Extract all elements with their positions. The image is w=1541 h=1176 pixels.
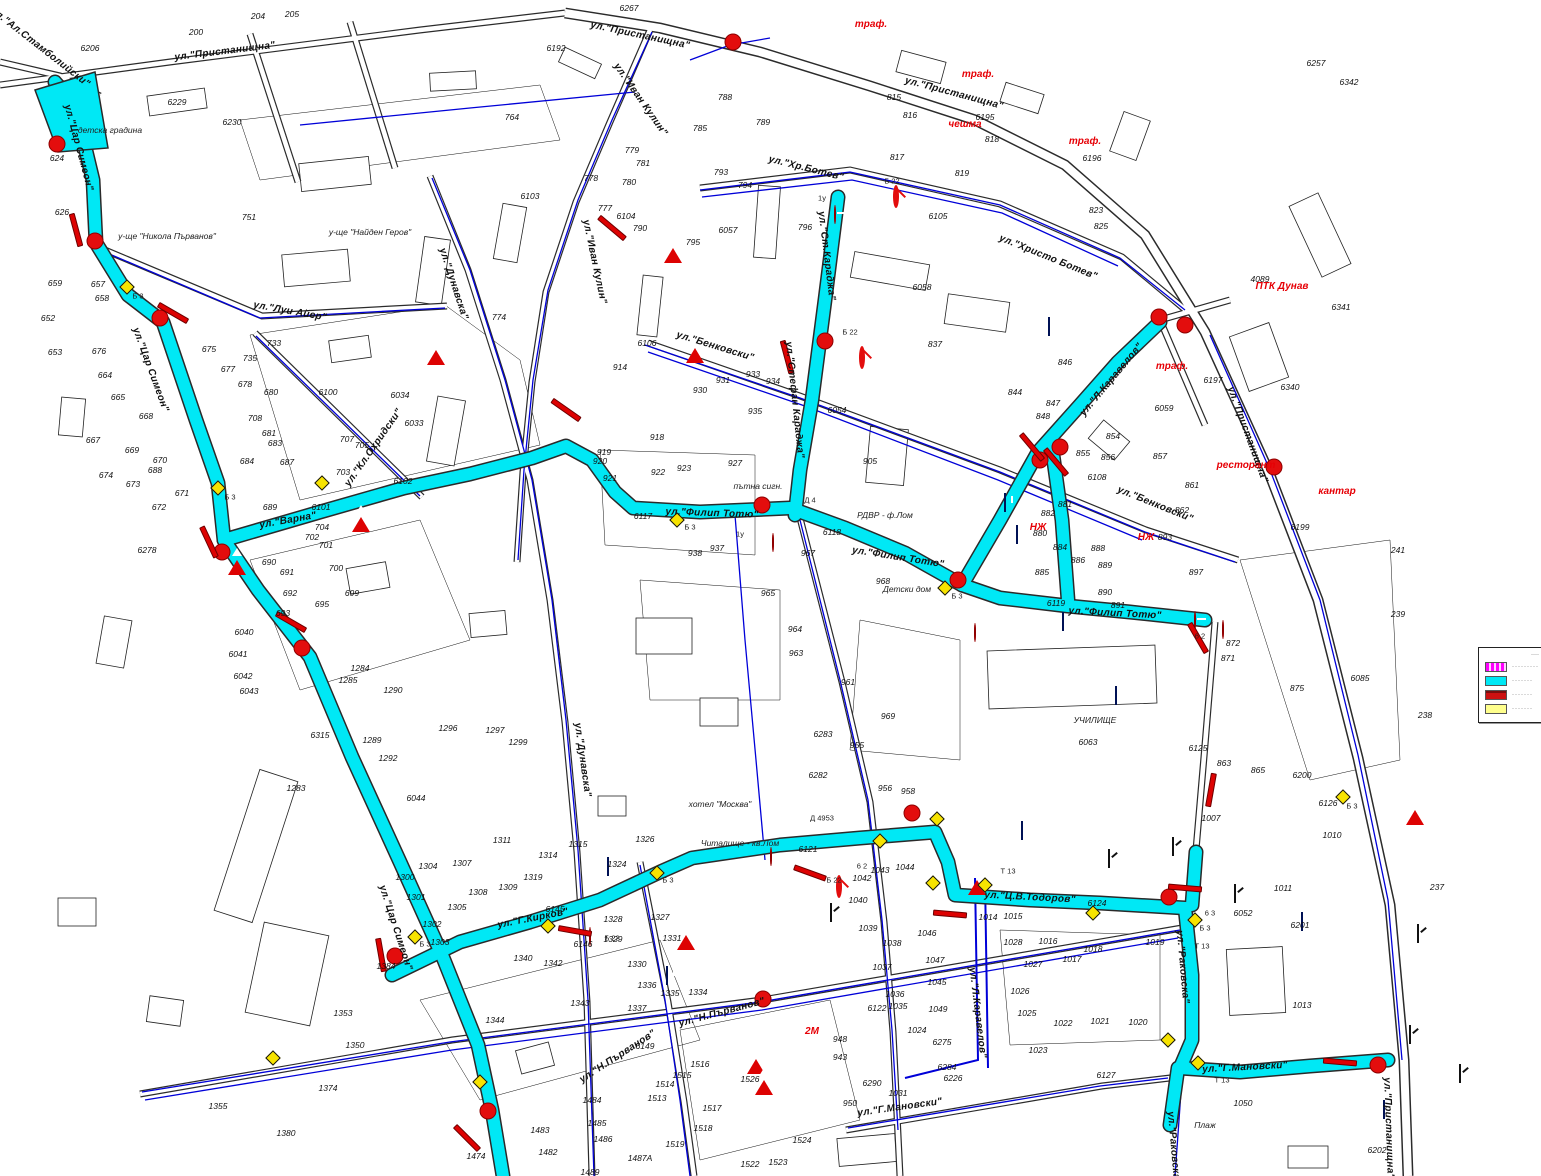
- parcel-number: 825: [1094, 222, 1108, 231]
- parcel-number: 700: [329, 564, 343, 573]
- parcel-number: 1342: [544, 959, 563, 968]
- parcel-number: 1516: [691, 1060, 710, 1069]
- parcel-number: 1026: [1011, 987, 1030, 996]
- parcel-number: 204: [251, 12, 265, 21]
- parcel-number: 875: [1290, 684, 1304, 693]
- parcel-number: 948: [833, 1035, 847, 1044]
- info-sign-icon: [1004, 493, 1006, 512]
- sign-code-label: Б 3: [662, 876, 673, 884]
- parcel-number: 1380: [277, 1129, 296, 1138]
- parcel-number: 886: [1071, 556, 1085, 565]
- parcel-number: 1343: [571, 999, 590, 1008]
- parcel-number: 6192: [547, 44, 566, 53]
- legend-item-red: ·······: [1485, 690, 1539, 700]
- parcel-number: 6290: [863, 1079, 882, 1088]
- yield-sign-icon: [228, 543, 246, 575]
- parcel-number: 1519: [666, 1140, 685, 1149]
- parcel-number: 1515: [673, 1071, 692, 1080]
- parcel-number: 1489: [581, 1168, 600, 1176]
- sign-code-label: Б 3: [684, 523, 695, 531]
- parcel-number: 701: [319, 541, 333, 550]
- parcel-number: 1040: [849, 896, 868, 905]
- parcel-number: 1028: [1004, 938, 1023, 947]
- poi-label-red: кантар: [1318, 487, 1355, 497]
- sign-code-label: Б 3: [1346, 802, 1357, 810]
- parcel-number: 1513: [648, 1094, 667, 1103]
- parcel-number: 1031: [889, 1089, 908, 1098]
- parcel-number: 692: [283, 589, 297, 598]
- parcel-number: 969: [881, 712, 895, 721]
- parcel-number: 819: [955, 169, 969, 178]
- no-entry-sign-icon: [834, 205, 836, 224]
- parcel-number: 785: [693, 124, 707, 133]
- parcel-number: 6341: [1332, 303, 1351, 312]
- parcel-number: 1328: [604, 915, 623, 924]
- parcel-number: 938: [688, 549, 702, 558]
- poi-label-red: НЖ: [1138, 533, 1155, 543]
- parcel-number: 1300: [396, 873, 415, 882]
- red-poi-marker-icon: [1161, 889, 1178, 906]
- parcel-number: 1039: [859, 924, 878, 933]
- parcel-number: 1050: [1234, 1099, 1253, 1108]
- parcel-number: 780: [622, 178, 636, 187]
- parcel-number: 897: [1189, 568, 1203, 577]
- parcel-number: 6105: [929, 212, 948, 221]
- red-poi-marker-icon: [1177, 317, 1194, 334]
- parcel-number: 1296: [439, 724, 458, 733]
- parcel-number: 815: [887, 93, 901, 102]
- no-entry-sign-icon: [772, 533, 774, 552]
- parcel-number: 837: [928, 340, 942, 349]
- red-poi-marker-icon: [49, 136, 66, 153]
- parcel-number: 1482: [539, 1148, 558, 1157]
- parcel-number: 817: [890, 153, 904, 162]
- parcel-number: 1304: [419, 862, 438, 871]
- poi-label-red: траф.: [1069, 137, 1101, 147]
- parcel-number: 664: [98, 371, 112, 380]
- parcel-number: 1011: [1274, 884, 1292, 893]
- parcel-number: 1021: [1091, 1017, 1110, 1026]
- parcel-number: 923: [677, 464, 691, 473]
- parcel-number: 1314: [539, 851, 558, 860]
- parcel-number: 6229: [168, 98, 187, 107]
- parcel-number: 1047: [926, 956, 945, 965]
- parcel-number: 963: [789, 649, 803, 658]
- crossing-sign-icon: [830, 903, 832, 922]
- parcel-number: 890: [1098, 588, 1112, 597]
- poi-label: у-ще "Никола Първанов": [118, 232, 216, 241]
- parcel-number: 854: [1106, 432, 1120, 441]
- sign-code-label: Т 13: [1194, 942, 1209, 950]
- parcel-number: 955: [850, 741, 864, 750]
- parcel-number: 1311: [493, 836, 511, 845]
- info-sign-icon: [1048, 317, 1050, 336]
- parcel-number: 708: [248, 414, 262, 423]
- parcel-number: 733: [267, 339, 281, 348]
- parcel-number: 865: [1251, 766, 1265, 775]
- parcel-number: 6119: [1047, 599, 1065, 608]
- red-poi-marker-icon: [87, 233, 104, 250]
- parcel-number: 6196: [1083, 154, 1102, 163]
- parcel-number: 6034: [391, 391, 410, 400]
- parcel-number: 764: [505, 113, 519, 122]
- parcel-number: 933: [746, 370, 760, 379]
- parcel-number: 1018: [1084, 945, 1103, 954]
- parcel-number: 6054: [828, 406, 847, 415]
- sign-code-label: Б 22: [884, 177, 899, 185]
- parcel-number: 665: [111, 393, 125, 402]
- poi-label: детска градина: [78, 126, 142, 135]
- sign-code-label: Б 3: [132, 292, 143, 300]
- yield-sign-icon: [664, 231, 682, 263]
- poi-label-red: НЖ: [1030, 523, 1047, 533]
- parcel-number: 1517: [703, 1104, 722, 1113]
- parcel-number: 967: [801, 549, 815, 558]
- poi-label-red: траф.: [962, 70, 994, 80]
- parcel-number: 6267: [620, 4, 639, 13]
- parcel-number: 885: [1035, 568, 1049, 577]
- parcel-number: 1485: [588, 1119, 607, 1128]
- parcel-number: 658: [95, 294, 109, 303]
- info-sign-icon: [1062, 612, 1064, 631]
- parcel-number: 856: [1101, 453, 1115, 462]
- red-poi-marker-icon: [1370, 1057, 1387, 1074]
- parcel-number: 1292: [379, 754, 398, 763]
- sign-code-label: 6 3: [1205, 909, 1215, 917]
- parcel-number: 872: [1226, 639, 1240, 648]
- parcel-number: 1038: [883, 939, 902, 948]
- parcel-number: 937: [710, 544, 724, 553]
- parcel-number: 1474: [467, 1152, 486, 1161]
- parcel-number: 673: [126, 480, 140, 489]
- parcel-number: 778: [584, 174, 598, 183]
- parcel-number: 6103: [521, 192, 540, 201]
- yield-sign-icon: [1406, 793, 1424, 825]
- crossing-sign-icon: [1172, 837, 1174, 856]
- crossing-sign-icon: [1234, 884, 1236, 903]
- sign-code-label: Б 3: [951, 592, 962, 600]
- parcel-number: 1334: [689, 988, 708, 997]
- parcel-number: 205: [285, 10, 299, 19]
- parcel-number: 690: [262, 558, 276, 567]
- parcel-number: 1285: [339, 676, 358, 685]
- parcel-number: 1302: [423, 920, 442, 929]
- parcel-number: 1486: [594, 1135, 613, 1144]
- parcel-number: 702: [305, 533, 319, 542]
- no-entry-sign-icon: [770, 847, 772, 866]
- parcel-number: 1013: [1293, 1001, 1312, 1010]
- parcel-number: 683: [268, 439, 282, 448]
- parcel-number: 1483: [531, 1126, 550, 1135]
- parcel-number: 905: [863, 457, 877, 466]
- parcel-number: 6275: [933, 1038, 952, 1047]
- legend-swatch-cyan-icon: [1485, 676, 1507, 686]
- parcel-number: 847: [1046, 399, 1060, 408]
- parcel-number: 943: [833, 1053, 847, 1062]
- parcel-number: 1526: [741, 1075, 760, 1084]
- parcel-number: 652: [41, 314, 55, 323]
- parcel-number: 855: [1076, 449, 1090, 458]
- parcel-number: 1484: [583, 1096, 602, 1105]
- parcel-number: 6106: [638, 339, 657, 348]
- poi-label-red: 2М: [805, 1027, 819, 1037]
- parcel-number: 794: [738, 181, 752, 190]
- parcel-number: 624: [50, 154, 64, 163]
- parcel-number: 688: [148, 466, 162, 475]
- parcel-number: 6283: [814, 730, 833, 739]
- parcel-number: 689: [263, 503, 277, 512]
- parcel-number: 1344: [486, 1016, 505, 1025]
- parcel-number: 1335: [661, 989, 680, 998]
- parcel-number: 1007: [1202, 814, 1221, 823]
- parcel-number: 1308: [469, 888, 488, 897]
- parcel-number: 695: [315, 600, 329, 609]
- parcel-number: 6282: [809, 771, 828, 780]
- parcel-number: 751: [242, 213, 256, 222]
- parcel-number: 920: [593, 457, 607, 466]
- parcel-number: 674: [99, 471, 113, 480]
- parcel-number: 676: [92, 347, 106, 356]
- info-sign-icon: [1021, 821, 1023, 840]
- crossing-sign-icon: [1108, 849, 1110, 868]
- parcel-number: 1337: [628, 1004, 647, 1013]
- sign-code-label: Б 22: [842, 328, 857, 336]
- poi-label-red: траф.: [1156, 362, 1188, 372]
- parcel-number: 882: [1041, 509, 1055, 518]
- legend-swatch-red-icon: [1485, 690, 1507, 700]
- parcel-number: 669: [125, 446, 139, 455]
- parcel-number: 6226: [944, 1074, 963, 1083]
- parcel-number: 1044: [896, 863, 915, 872]
- parcel-number: 1036: [886, 990, 905, 999]
- parcel-number: 6199: [1291, 523, 1310, 532]
- sign-code-label: Б 3: [224, 493, 235, 501]
- poi-label: Читалище - кв.Лом: [701, 839, 779, 848]
- poi-label: пътна сигн.: [733, 482, 782, 491]
- parcel-number: 846: [1058, 358, 1072, 367]
- parcel-number: 922: [651, 468, 665, 477]
- parcel-number: 1487А: [628, 1154, 653, 1163]
- parcel-number: 861: [1185, 481, 1199, 490]
- parcel-number: 6044: [407, 794, 426, 803]
- parcel-number: 707: [340, 435, 354, 444]
- parcel-number: 6127: [1097, 1071, 1116, 1080]
- parcel-number: 6041: [229, 650, 248, 659]
- info-sign-icon: [666, 966, 668, 985]
- parcel-number: 238: [1418, 711, 1432, 720]
- parcel-number: 1045: [928, 978, 947, 987]
- parcel-number: 6058: [913, 283, 932, 292]
- parcel-number: 795: [686, 238, 700, 247]
- parcel-number: 6340: [1281, 383, 1300, 392]
- parcel-number: 956: [878, 784, 892, 793]
- crossing-sign-icon: [1409, 1025, 1411, 1044]
- parcel-number: 6118: [823, 528, 841, 537]
- parcel-number: 893: [1158, 533, 1172, 542]
- parcel-number: 1017: [1063, 955, 1082, 964]
- parcel-number: 796: [798, 223, 812, 232]
- parcel-number: 1014: [979, 913, 998, 922]
- parcel-number: 1299: [509, 738, 528, 747]
- parcel-number: 6230: [223, 118, 242, 127]
- parcel-number: 6121: [799, 845, 818, 854]
- parcel-number: 1020: [1129, 1018, 1148, 1027]
- parcel-number: 6278: [138, 546, 157, 555]
- parcel-number: 1374: [319, 1084, 338, 1093]
- parcel-number: 1290: [384, 686, 403, 695]
- parcel-number: 1336: [638, 981, 657, 990]
- parcel-number: 6117: [634, 512, 652, 521]
- sign-code-label: Б 3: [419, 940, 430, 948]
- parcel-number: 863: [1217, 759, 1231, 768]
- no-stopping-sign-icon: [859, 346, 865, 369]
- parcel-number: 781: [636, 159, 650, 168]
- poi-label-red: чешма: [948, 120, 981, 130]
- parcel-number: 889: [1098, 561, 1112, 570]
- parcel-number: 681: [262, 429, 276, 438]
- yield-sign-icon: [427, 333, 445, 365]
- parcel-number: 1284: [351, 664, 370, 673]
- parcel-number: 918: [650, 433, 664, 442]
- parcel-number: 844: [1008, 388, 1022, 397]
- red-poi-marker-icon: [1052, 439, 1069, 456]
- parcel-number: 691: [280, 568, 294, 577]
- poi-label: хотел "Москва": [689, 800, 752, 809]
- poi-label-red: траф.: [855, 20, 887, 30]
- parcel-number: 6042: [234, 672, 253, 681]
- parcel-number: 1319: [524, 873, 543, 882]
- parcel-number: 675: [202, 345, 216, 354]
- parcel-number: 200: [189, 28, 203, 37]
- parcel-number: 1046: [918, 929, 937, 938]
- parcel-number: 6201: [1291, 921, 1310, 930]
- street-label: ул."Пристанищна": [1381, 1077, 1395, 1176]
- parcel-number: 789: [756, 118, 770, 127]
- parcel-number: 793: [714, 168, 728, 177]
- parcel-number: 6043: [240, 687, 259, 696]
- parcel-number: 6052: [1234, 909, 1253, 918]
- parcel-number: 6125: [1189, 744, 1208, 753]
- sign-code-label: 6 2: [1195, 632, 1205, 640]
- parcel-number: 927: [728, 459, 742, 468]
- parcel-number: 1283: [287, 784, 306, 793]
- parcel-number: 6206: [81, 44, 100, 53]
- parcel-number: 774: [492, 313, 506, 322]
- parcel-number: 667: [86, 436, 100, 445]
- poi-label: у-ще "Найден Геров": [329, 228, 411, 237]
- parcel-number: 6342: [1340, 78, 1359, 87]
- legend-item-yellow: ·······: [1485, 704, 1539, 714]
- parcel-number: 1326: [636, 835, 655, 844]
- parcel-number: 950: [843, 1099, 857, 1108]
- parcel-number: 659: [48, 279, 62, 288]
- sign-code-label: Т 13: [1000, 867, 1015, 875]
- parcel-number: 1523: [769, 1158, 788, 1167]
- parcel-number: 699: [345, 589, 359, 598]
- parcel-number: 1027: [1024, 960, 1043, 969]
- parcel-number: 680: [264, 388, 278, 397]
- red-poi-marker-icon: [904, 805, 921, 822]
- parcel-number: 881: [1058, 500, 1072, 509]
- parcel-number: 239: [1391, 610, 1405, 619]
- parcel-number: 1022: [1054, 1019, 1073, 1028]
- parcel-number: 6124: [1088, 899, 1107, 908]
- parcel-number: 735: [243, 354, 257, 363]
- poi-label: УЧИЛИЩЕ: [1074, 716, 1117, 725]
- parcel-number: 6146: [574, 940, 593, 949]
- parcel-number: 1522: [741, 1160, 760, 1169]
- parcel-number: 1303: [431, 938, 450, 947]
- parcel-number: 964: [788, 625, 802, 634]
- parcel-number: 871: [1221, 654, 1235, 663]
- parcel-number: 237: [1430, 883, 1444, 892]
- parcel-number: 1340: [514, 954, 533, 963]
- parcel-number: 687: [280, 458, 294, 467]
- sign-code-label: Б 3: [1199, 924, 1210, 932]
- parcel-number: 6033: [405, 419, 424, 428]
- parcel-number: 677: [221, 365, 235, 374]
- sign-code-label: Б 22: [604, 934, 619, 942]
- parcel-number: 1019: [1146, 938, 1165, 947]
- parcel-number: 6200: [1293, 771, 1312, 780]
- map-canvas[interactable]: ···· ········· ······· ······· ······· 2…: [0, 0, 1541, 1176]
- parcel-number: 6315: [311, 731, 330, 740]
- parcel-number: 678: [238, 380, 252, 389]
- red-poi-marker-icon: [950, 572, 967, 589]
- parcel-number: 6102: [394, 477, 413, 486]
- parcel-number: 1023: [1029, 1046, 1048, 1055]
- yield-sign-icon: [352, 500, 370, 532]
- parcel-number: 914: [613, 363, 627, 372]
- sign-code-label: 6 2: [857, 862, 867, 870]
- sign-code-label: Б 22: [826, 876, 841, 884]
- parcel-number: 1309: [499, 883, 518, 892]
- parcel-number: 6040: [235, 628, 254, 637]
- parcel-number: 1301: [407, 893, 426, 902]
- poi-label: РДВР - ф.Лом: [857, 511, 913, 520]
- sign-code-label: Д 4: [804, 496, 815, 504]
- parcel-number: 1289: [363, 736, 382, 745]
- no-entry-sign-icon: [974, 623, 976, 642]
- no-entry-sign-icon: [1222, 620, 1224, 639]
- parcel-number: 934: [766, 377, 780, 386]
- parcel-number: 1035: [889, 1002, 908, 1011]
- parcel-number: 1331: [663, 934, 682, 943]
- red-poi-marker-icon: [294, 640, 311, 657]
- parcel-number: 6122: [868, 1004, 887, 1013]
- parcel-number: 857: [1153, 452, 1167, 461]
- parcel-number: 657: [91, 280, 105, 289]
- sign-code-label: 1у: [736, 530, 744, 538]
- red-poi-marker-icon: [1151, 309, 1168, 326]
- info-sign-icon: [1016, 525, 1018, 544]
- parcel-number: 965: [761, 589, 775, 598]
- parcel-number: 935: [748, 407, 762, 416]
- red-poi-marker-icon: [725, 34, 742, 51]
- parcel-number: 930: [693, 386, 707, 395]
- parcel-number: 884: [1053, 543, 1067, 552]
- parcel-number: 6284: [938, 1063, 957, 1072]
- parcel-number: 1330: [628, 960, 647, 969]
- parcel-number: 921: [603, 474, 617, 483]
- parcel-number: 1324: [608, 860, 627, 869]
- crossing-sign-icon: [1459, 1064, 1461, 1083]
- parcel-number: 693: [276, 609, 290, 618]
- parcel-number: 1305: [448, 903, 467, 912]
- parcel-number: 1514: [656, 1080, 675, 1089]
- parcel-number: 670: [153, 456, 167, 465]
- parcel-number: 848: [1036, 412, 1050, 421]
